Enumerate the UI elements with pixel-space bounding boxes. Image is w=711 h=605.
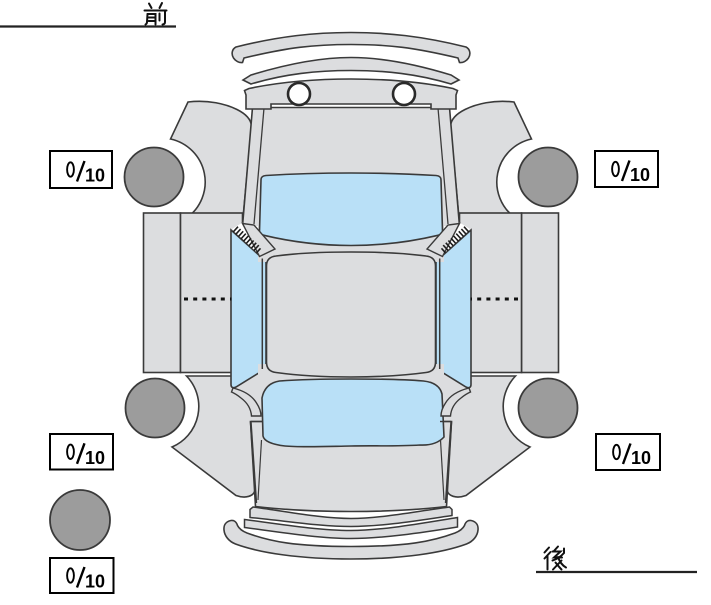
svg-text:10: 10 — [85, 572, 105, 592]
svg-text:10: 10 — [85, 166, 105, 186]
svg-text:10: 10 — [631, 448, 651, 468]
svg-text:10: 10 — [630, 165, 650, 185]
svg-text:10: 10 — [85, 448, 105, 468]
